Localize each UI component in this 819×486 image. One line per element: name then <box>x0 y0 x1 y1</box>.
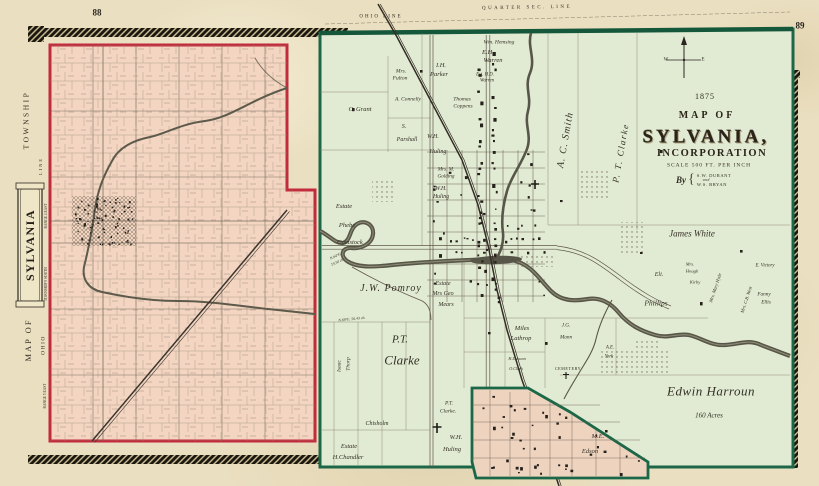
title-scale: SCALE 500 FT. PER INCH <box>667 163 751 169</box>
map-label: P.T. <box>445 401 453 407</box>
map-label: Golding <box>437 174 454 179</box>
map-label: Parker <box>430 72 448 79</box>
map-label: Chisholm <box>365 421 388 427</box>
title-map-of: MAP OF <box>679 111 736 121</box>
map-label: Clarke. <box>440 409 456 415</box>
map-label: Edwin Harroun <box>667 385 755 398</box>
map-label: RANGE 5 EAST <box>44 384 48 409</box>
map-label: James White <box>669 230 715 239</box>
map-label: Eli. <box>655 272 664 278</box>
map-label: Huling <box>433 195 449 201</box>
map-label: I.H. <box>436 63 446 70</box>
compass-west-label: W <box>664 58 669 63</box>
map-label: J.G. <box>562 323 571 328</box>
byline-brace: { <box>688 172 695 188</box>
map-label: MAP OF <box>24 318 33 361</box>
map-label: Lathrop <box>511 336 532 343</box>
map-label: Mann <box>560 335 572 340</box>
map-label: Thorp <box>346 357 352 370</box>
map-label: P.T. <box>392 335 408 346</box>
map-label: W.H. <box>435 187 446 193</box>
township-map <box>16 45 315 443</box>
map-label: W.H. <box>450 435 463 442</box>
map-label: Fanny <box>757 292 770 297</box>
map-label: TOWNSHIP 9 SOUTH <box>45 267 49 301</box>
map-label: Estate <box>341 444 357 451</box>
page-number-right: 89 <box>796 22 805 31</box>
title-byline: By { S.W. DURANT and W.S. BRYAN <box>676 172 731 188</box>
map-label: C. Grant <box>348 107 371 114</box>
map-label: TOWNSHIP <box>22 91 30 150</box>
map-label: E. Victory <box>755 265 774 270</box>
map-label: Mrs. <box>396 69 406 75</box>
map-label: Warren <box>480 80 494 85</box>
title-sylvania: SYLVANIA, <box>643 128 770 147</box>
title-year: 1875 <box>695 93 715 101</box>
byline-publisher-2: W.S. BRYAN <box>697 182 727 187</box>
map-label: Isaac <box>337 360 343 372</box>
map-label: Phebe <box>339 223 355 230</box>
byline-by: By <box>676 175 686 185</box>
map-label: O.Clark <box>509 367 523 371</box>
map-label: Warren <box>483 58 502 65</box>
map-label: Hough <box>686 270 699 275</box>
map-label: Fulton <box>393 76 408 82</box>
map-label: CEMETERY <box>555 367 581 371</box>
map-label: Ellis <box>761 300 771 305</box>
title-incorporation: INCORPORATION <box>657 149 767 160</box>
map-label: Phillips <box>644 299 667 307</box>
map-label: S. <box>402 124 407 130</box>
compass-east-label: E <box>701 58 704 63</box>
map-label: Estate <box>336 204 352 211</box>
map-label: Estate <box>436 281 451 287</box>
map-label: J.W. Pomroy <box>360 284 422 294</box>
map-label: M.E. <box>592 434 605 441</box>
map-label: Comstock <box>337 240 363 247</box>
map-label: Mrs. M. <box>438 167 455 172</box>
map-label: Kirby <box>690 281 700 286</box>
map-label: Miles <box>515 326 529 333</box>
map-label: Mears <box>438 302 453 308</box>
map-label: W.H. <box>427 134 439 140</box>
map-label: E.H. <box>482 50 494 57</box>
page-number-left: 88 <box>93 9 102 18</box>
map-label: RANGE 4 EAST <box>45 204 49 229</box>
map-label: OHIO LINE <box>359 15 402 20</box>
map-label: Huling <box>443 447 461 454</box>
map-label: OHIO <box>41 335 47 355</box>
map-label: Huling <box>430 149 447 155</box>
map-label: Wm. Hemsing <box>484 40 515 46</box>
map-label: 160 Acres <box>695 413 723 420</box>
map-label: LINE <box>39 157 44 175</box>
map-label: Edson <box>582 449 598 456</box>
map-label: Mrs Geo <box>432 291 453 297</box>
map-label: Thomas <box>453 97 470 103</box>
map-label: H.Duncan <box>508 357 525 361</box>
map-label: Mrs. <box>686 263 695 268</box>
map-label: SYLVANIA <box>24 209 36 281</box>
map-label: H.Chandler <box>333 455 364 462</box>
map-label: Clarke <box>384 354 419 367</box>
atlas-page: 88 89 TOWNSHIPSYLVANIAMAP OFOHIOLINERANG… <box>0 0 819 486</box>
map-label: A. Connelly <box>395 97 421 103</box>
map-label: Parshall <box>397 137 418 143</box>
map-label: York <box>605 356 614 361</box>
map-label: A.E. <box>606 347 614 352</box>
map-label: Coppens <box>453 104 472 110</box>
